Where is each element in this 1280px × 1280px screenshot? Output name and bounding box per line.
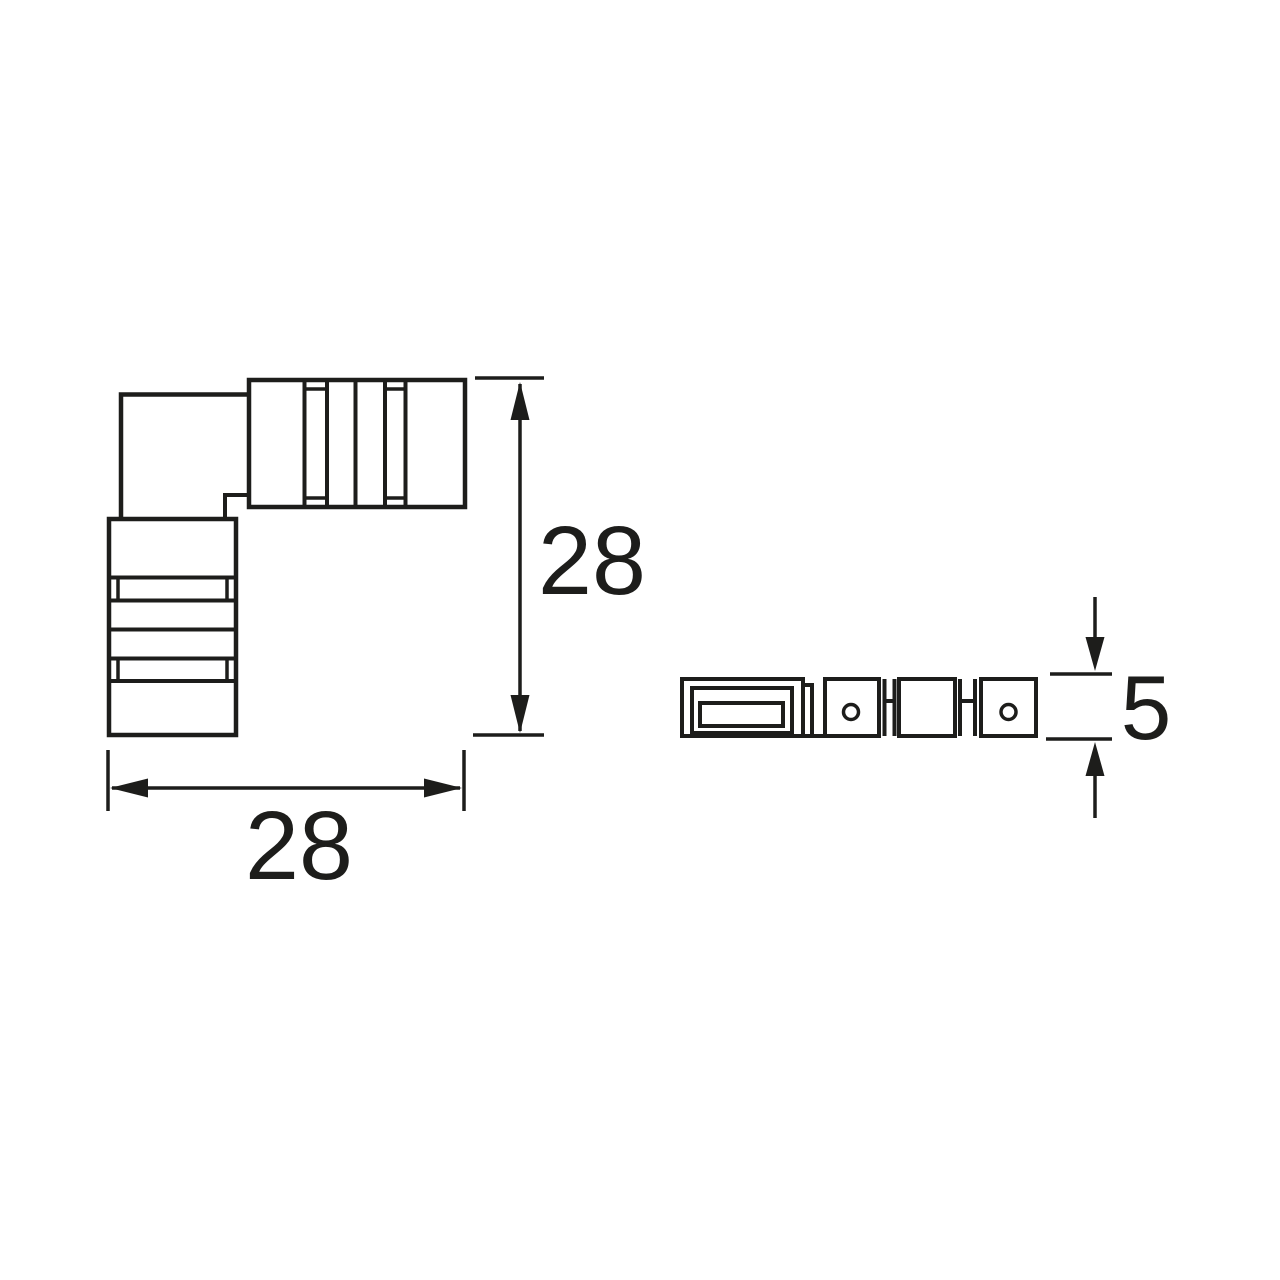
corner-body-outline [121,395,249,520]
side-view [682,679,1036,736]
top-socket-dividers [305,380,406,507]
arrowhead-down [511,695,530,733]
screw-hole-right [1001,705,1016,720]
dimension-front-width: 28 [108,750,464,900]
dimension-thickness-label: 5 [1121,658,1172,759]
arrowhead-up [511,382,530,420]
arrowhead-left [110,779,148,798]
dimension-front-height: 28 [473,378,646,735]
middle-block [899,679,955,736]
arrowhead-up [1086,742,1105,776]
front-view [109,380,465,735]
clip-plate-right [981,679,1036,736]
dimension-width-label: 28 [245,791,353,900]
dimension-side-height: 5 [1046,597,1171,818]
left-socket-outline [109,519,236,735]
arrowhead-right [424,779,462,798]
cap-slot [700,703,783,726]
joint-strip-left [885,679,895,736]
screw-hole-left [844,705,859,720]
left-socket-dividers [109,578,236,682]
dimension-height-label: 28 [538,506,646,615]
arrowhead-down [1086,637,1105,671]
joint-strip-right [960,679,975,736]
clip-plate-left [825,679,879,736]
technical-drawing-canvas: 28 28 5 [0,0,1280,1280]
